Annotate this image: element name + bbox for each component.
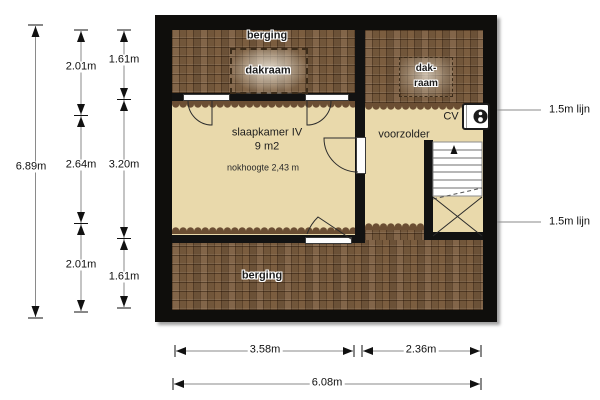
room-area-slaapkamer: 9 m2 bbox=[255, 142, 279, 153]
roof-edge-scallop bbox=[172, 224, 355, 234]
roof-edge-scallop bbox=[172, 101, 355, 111]
roof-edge-scallop bbox=[365, 220, 424, 230]
wall-stairs-west bbox=[424, 140, 433, 240]
roof-area-bottom bbox=[172, 240, 483, 310]
dim-bottom-left: 3.58m bbox=[248, 345, 283, 356]
dim-col-a-mid: 2.64m bbox=[64, 160, 99, 171]
dim-col-a-top: 2.01m bbox=[64, 62, 99, 73]
door-opening-south bbox=[305, 237, 352, 244]
wall-stairs-south bbox=[424, 232, 483, 240]
label-cv: CV bbox=[443, 112, 458, 123]
floor-plan-canvas: berging dakraam dak- raam slaapkamer IV … bbox=[0, 0, 600, 400]
dim-right-line-2: 1.5m lijn bbox=[547, 217, 592, 228]
skylight-label-right-line2: raam bbox=[414, 79, 438, 89]
skylight-label-right-line1: dak- bbox=[416, 64, 437, 74]
room-label-slaapkamer: slaapkamer IV bbox=[232, 128, 302, 139]
room-label-berging-bottom: berging bbox=[242, 271, 282, 282]
dim-col-b-bottom: 1.61m bbox=[107, 272, 142, 283]
door-opening-north-right bbox=[305, 94, 349, 101]
room-note-nokhoogte: nokhoogte 2,43 m bbox=[227, 164, 299, 173]
leader-lines-right bbox=[497, 110, 541, 222]
door-leaf-slaapkamer bbox=[356, 137, 366, 174]
dim-bottom-right: 2.36m bbox=[404, 345, 439, 356]
dim-col-b-mid: 3.20m bbox=[107, 160, 142, 171]
room-label-berging-top: berging bbox=[247, 31, 287, 42]
staircase-treads-area bbox=[433, 142, 482, 196]
dim-right-line-1: 1.5m lijn bbox=[547, 105, 592, 116]
dim-col-b-top: 1.61m bbox=[107, 55, 142, 66]
cv-boiler-unit bbox=[462, 103, 490, 130]
door-opening-north-left bbox=[183, 94, 230, 101]
room-label-voorzolder: voorzolder bbox=[378, 130, 429, 141]
dim-total-height: 6.89m bbox=[14, 162, 49, 173]
skylight-label-top: dakraam bbox=[245, 66, 290, 77]
dim-col-a-bottom: 2.01m bbox=[64, 260, 99, 271]
dim-bottom-total: 6.08m bbox=[310, 378, 345, 389]
